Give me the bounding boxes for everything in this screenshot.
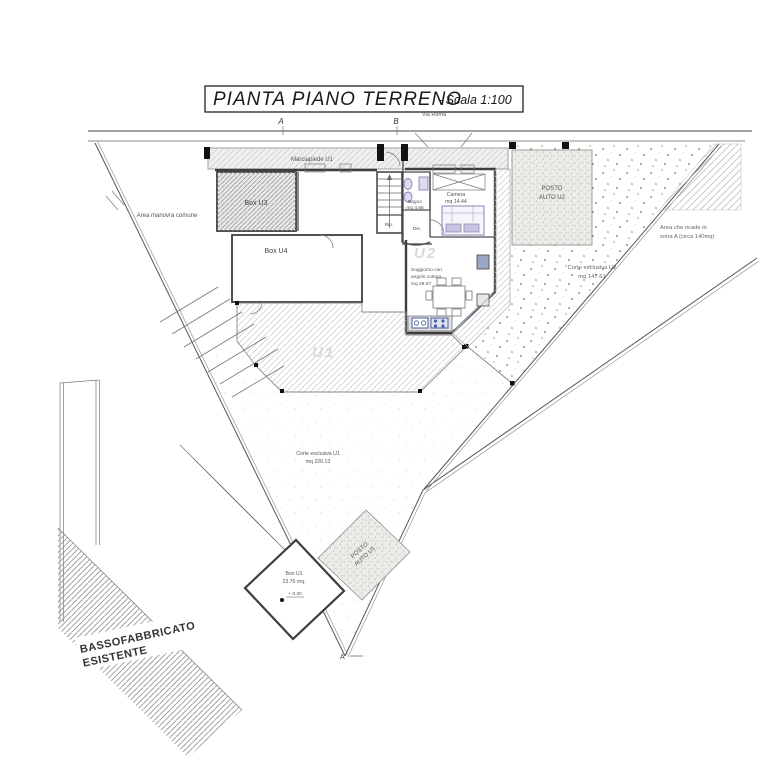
road-marker-a: A bbox=[277, 117, 283, 126]
ripostiglio-label: Rip. bbox=[385, 222, 394, 228]
posto-auto-u2: POSTO AUTO U2 bbox=[509, 142, 592, 245]
floor-plan-drawing: PIANTA PIANO TERRENO - Scala 1:100 A B V… bbox=[0, 0, 768, 768]
box-u1-label-line1: Box U1 bbox=[285, 571, 302, 577]
corte-u2-label-line2: mq 147.61 bbox=[578, 274, 605, 280]
corte-u1-label-line2: mq 220.13 bbox=[306, 459, 331, 465]
box-u1-level: + 0.30 bbox=[288, 591, 302, 597]
drawing-title: PIANTA PIANO TERRENO bbox=[213, 89, 462, 110]
watermark-u2: U2 bbox=[414, 245, 437, 262]
box-u4-label: Box U4 bbox=[265, 248, 288, 255]
bagno-label-line2: mq 4.66 bbox=[406, 205, 424, 211]
box-u3-label: Box U3 bbox=[245, 200, 268, 207]
title-block: PIANTA PIANO TERRENO - Scala 1:100 bbox=[205, 86, 523, 112]
marciapiede-u1: Marciapiede U1 bbox=[204, 147, 508, 169]
soggiorno-label-line3: mq 29.97 bbox=[411, 281, 431, 287]
corte-u2-label-line1: Corte esclusiva U2 bbox=[568, 265, 617, 271]
bagno-label-line1: Bagno bbox=[408, 199, 422, 205]
soggiorno-label-line1: Soggiorno con bbox=[411, 267, 442, 273]
box-u1-label-line2: 23.76 mq. bbox=[282, 579, 305, 585]
drawing-scale: - Scala 1:100 bbox=[438, 93, 512, 107]
floor-plan-page: PIANTA PIANO TERRENO - Scala 1:100 A B V… bbox=[0, 0, 768, 768]
camera-label-line2: mq 14.44 bbox=[445, 199, 467, 205]
camera-label-line1: Camera bbox=[447, 192, 466, 198]
posto-auto-u2-line1: POSTO bbox=[542, 186, 563, 192]
road-marker-b: B bbox=[393, 117, 399, 126]
bed bbox=[442, 206, 484, 235]
dis-label: Dis. bbox=[413, 226, 421, 232]
posto-auto-u2-line2: AUTO U2 bbox=[539, 195, 566, 201]
corte-u1-label-line1: Corte esclusiva U1 bbox=[296, 451, 340, 457]
section-marker-a-label: A bbox=[340, 654, 345, 661]
zona-a-label-line1: Area che ricade in bbox=[660, 225, 707, 231]
marciapiede-label: Marciapiede U1 bbox=[291, 157, 334, 163]
street-name: Via Roma bbox=[422, 112, 447, 118]
area-manovra-label: Area manovra comune bbox=[137, 213, 198, 219]
zona-a-label-line2: zona A (circa 140mq) bbox=[660, 234, 715, 240]
watermark-u1: U1 bbox=[312, 344, 335, 361]
